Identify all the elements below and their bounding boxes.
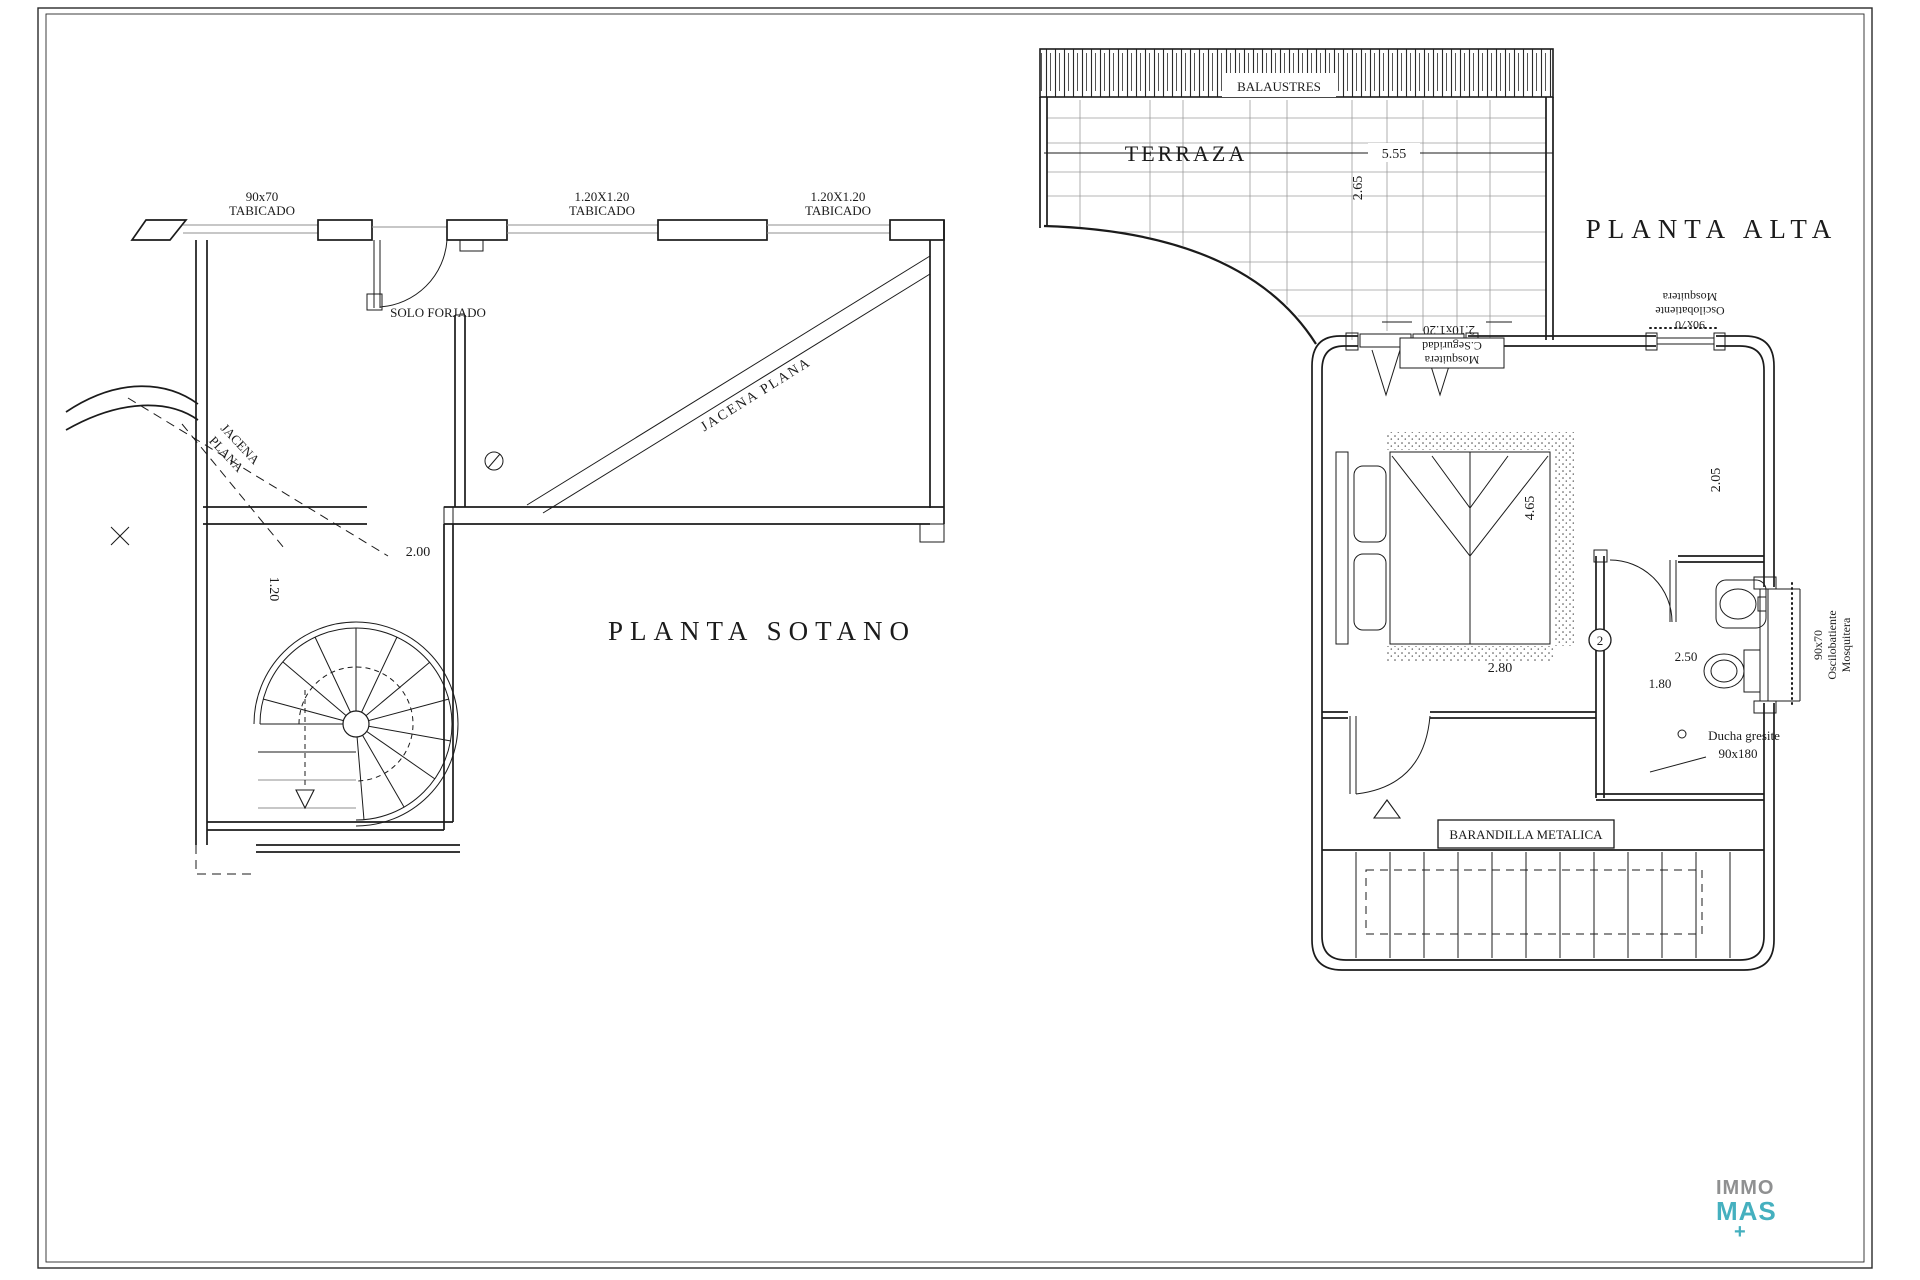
basement-plan: 90x70 TABICADO 1.20X1.20 TABICADO 1.20X1… [66,189,944,874]
window-90x70-label-line1: 90x70 [246,189,279,204]
x-mark [111,527,129,545]
svg-text:Mosquitera: Mosquitera [1424,353,1479,367]
dim-2-80: 2.80 [1488,661,1513,676]
dim-2-65: 2.65 [1351,176,1366,201]
upper-plan: BALAUSTRES 5.55 2.65 [1040,49,1853,970]
upper-stairs [1322,850,1764,958]
balaustres-label: BALAUSTRES [1237,79,1321,94]
bathroom: 2 2.50 1.80 Ducha gresite 90x180 [1589,550,1780,800]
dim-2-50: 2.50 [1675,649,1698,664]
barandilla-label: BARANDILLA METALICA [1449,827,1603,842]
window-120b-label-line1: 1.20X1.20 [811,189,866,204]
curved-wall [1044,226,1316,344]
svg-text:90x70: 90x70 [1811,630,1825,660]
logo-immo: IMMO [1716,1178,1808,1198]
interior-door [1322,712,1596,794]
ducha-label-line1: Ducha gresite [1708,728,1780,743]
dim-2-05: 2.05 [1709,468,1724,493]
stair-direction-arrow [296,790,314,808]
svg-text:C.Seguridad: C.Seguridad [1422,339,1482,353]
terrace-tiles [1047,100,1546,340]
solo-forjado-label: SOLO FORJADO [390,305,486,320]
immomas-logo: IMMO MAS + [1716,1178,1808,1242]
svg-text:90x70: 90x70 [1675,318,1705,332]
svg-text:Mosquitera: Mosquitera [1662,290,1717,304]
shower-drain [1678,730,1686,738]
floorplan-sheet: 90x70 TABICADO 1.20X1.20 TABICADO 1.20X1… [0,0,1920,1280]
logo-mas: MAS [1716,1198,1808,1224]
window-120a-label-line2: TABICADO [569,203,635,218]
window-120b-label-line2: TABICADO [805,203,871,218]
dim-4-65: 4.65 [1523,496,1538,521]
bath-number: 2 [1597,633,1604,648]
toilet [1704,650,1760,692]
osc-window-top-label: 90x70 Oscilobatiente Mosquitera [1655,290,1724,332]
window-120a-label-line1: 1.20X1.20 [575,189,630,204]
floorplan-drawing: 90x70 TABICADO 1.20X1.20 TABICADO 1.20X1… [0,0,1920,1280]
osc-window-right-label: 90x70 Oscilobatiente Mosquitera [1811,610,1853,679]
dim-1-80: 1.80 [1649,676,1672,691]
svg-text:Oscilobatiente: Oscilobatiente [1825,610,1839,679]
mosquitera-seguridad-label: Mosquitera C.Seguridad [1422,339,1482,367]
svg-text:Mosquitera: Mosquitera [1839,617,1853,672]
dim-2-00: 2.00 [406,545,431,560]
terraza-label: TERRAZA [1125,141,1247,166]
dim-1-20: 1.20 [266,577,281,602]
jacena-right-label: JACENA PLANA [698,355,814,435]
basement-title: PLANTA SOTANO [608,616,916,646]
upper-title: PLANTA ALTA [1586,214,1838,244]
window-90x70-label-line2: TABICADO [229,203,295,218]
dim-5-55: 5.55 [1382,147,1407,162]
stair-up-arrow [1374,800,1400,818]
spiral-staircase [254,622,458,826]
svg-text:Oscilobatiente: Oscilobatiente [1655,304,1724,318]
bed [1336,432,1574,662]
window-top-dim-label: 2.10x1.20 [1423,323,1475,338]
ducha-label-line2: 90x180 [1719,746,1758,761]
